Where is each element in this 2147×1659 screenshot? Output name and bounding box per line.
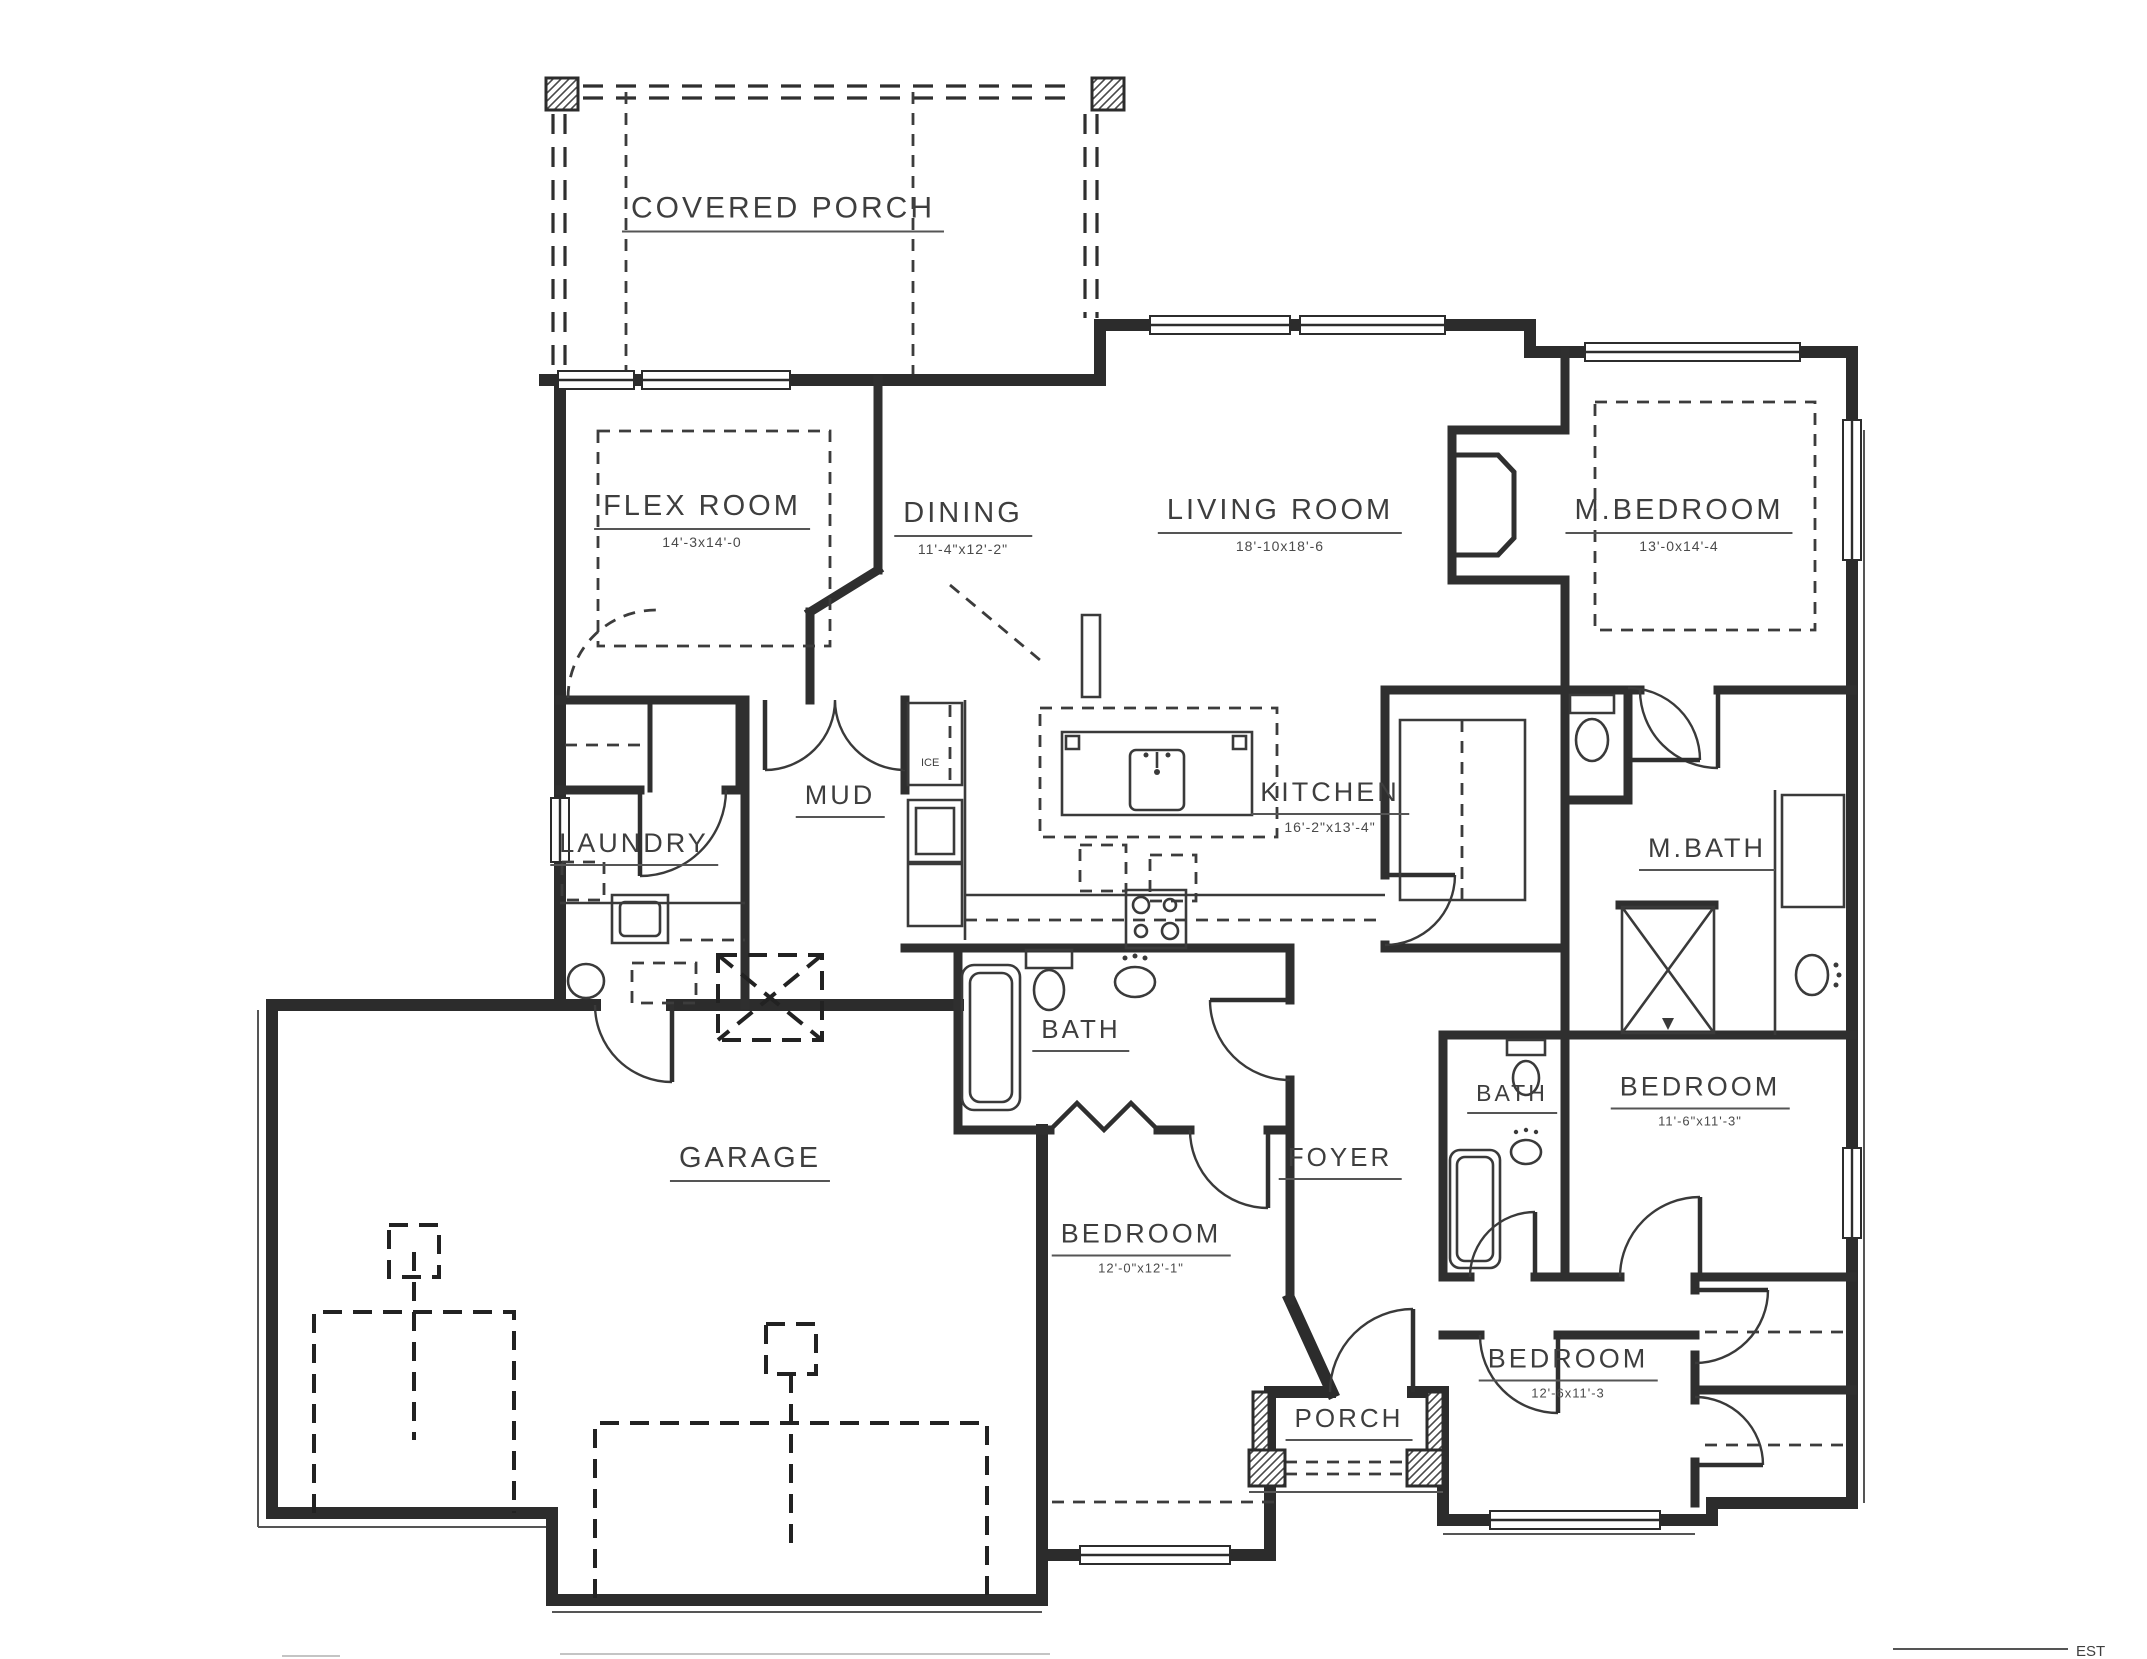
fridge-label: ICE bbox=[921, 757, 939, 769]
room-label-bedroom-right: BEDROOM 11'-6"x11'-3" bbox=[1611, 1072, 1790, 1129]
room-name: FLEX ROOM bbox=[594, 490, 810, 530]
room-label-bath-hall: BATH bbox=[1467, 1080, 1557, 1114]
bathtub-icon bbox=[962, 965, 1020, 1110]
room-name: BEDROOM bbox=[1479, 1344, 1658, 1382]
room-label-covered-porch: COVERED PORCH bbox=[622, 192, 944, 233]
room-name: PORCH bbox=[1286, 1403, 1413, 1441]
window-icon bbox=[1843, 420, 1861, 560]
room-dims: 13'-0x14'-4 bbox=[1565, 538, 1792, 554]
kitchen-sink-icon bbox=[1130, 750, 1184, 810]
room-dims: 12'-0"x12'-1" bbox=[1052, 1261, 1231, 1276]
fridge-icon bbox=[908, 703, 962, 785]
window-icon bbox=[1080, 1546, 1230, 1564]
floor-plan-drawing: ICE EST bbox=[0, 0, 2147, 1659]
room-name: KITCHEN bbox=[1251, 777, 1409, 815]
sink-icon bbox=[1796, 955, 1842, 995]
room-name: FOYER bbox=[1279, 1142, 1402, 1180]
room-label-bedroom-bottom: BEDROOM 12'-6x11'-3 bbox=[1479, 1344, 1658, 1401]
wall-oven-icon bbox=[908, 800, 962, 926]
porch-post-icon bbox=[546, 78, 578, 110]
attic-access-icon bbox=[718, 955, 822, 1040]
room-dims: 12'-6x11'-3 bbox=[1479, 1386, 1658, 1401]
toilet-icon bbox=[1026, 950, 1072, 1010]
room-name: BEDROOM bbox=[1052, 1219, 1231, 1257]
room-name: DINING bbox=[894, 497, 1032, 537]
room-label-m-bath: M.BATH bbox=[1639, 833, 1775, 871]
room-dims: 11'-6"x11'-3" bbox=[1611, 1114, 1790, 1129]
room-name: MUD bbox=[796, 780, 885, 818]
window-icon bbox=[1490, 1511, 1660, 1529]
room-dims: 14'-3x14'-0 bbox=[594, 534, 810, 550]
room-name: M.BATH bbox=[1639, 833, 1775, 871]
room-label-bath: BATH bbox=[1032, 1014, 1129, 1052]
porch-post-icon bbox=[1249, 1450, 1285, 1486]
room-name: BATH bbox=[1032, 1014, 1129, 1052]
room-label-m-bedroom: M.BEDROOM 13'-0x14'-4 bbox=[1565, 494, 1792, 554]
room-name: GARAGE bbox=[670, 1142, 830, 1182]
kitchen-island-icon bbox=[1062, 732, 1252, 815]
shower-icon bbox=[1622, 907, 1714, 1033]
porch-post-icon bbox=[1407, 1450, 1443, 1486]
room-dims: 18'-10x18'-6 bbox=[1158, 538, 1402, 554]
room-name: BATH bbox=[1467, 1080, 1557, 1114]
room-label-laundry: LAUNDRY bbox=[550, 828, 718, 866]
corner-annotation: EST bbox=[1893, 1643, 2105, 1659]
room-label-bedroom-middle: BEDROOM 12'-0"x12'-1" bbox=[1052, 1219, 1231, 1276]
room-dims: 16'-2"x13'-4" bbox=[1251, 819, 1409, 835]
floor-plan: ICE EST COVERED PORCH FLEX ROOM 14'-3x14… bbox=[0, 0, 2147, 1659]
room-label-garage: GARAGE bbox=[670, 1142, 830, 1182]
toilet-icon bbox=[1570, 695, 1614, 761]
garage-doors bbox=[314, 955, 987, 1598]
sink-icon bbox=[1511, 1128, 1541, 1164]
window-icon bbox=[1300, 316, 1445, 334]
room-name: M.BEDROOM bbox=[1565, 494, 1792, 534]
hutch-icon bbox=[1082, 615, 1100, 697]
window-icon bbox=[1150, 316, 1290, 334]
window-icon bbox=[1843, 1148, 1861, 1238]
room-label-porch: PORCH bbox=[1286, 1403, 1413, 1441]
bifold-doors-icon bbox=[1050, 1103, 1158, 1130]
room-label-flex-room: FLEX ROOM 14'-3x14'-0 bbox=[594, 490, 810, 550]
room-dims: 11'-4"x12'-2" bbox=[894, 541, 1032, 557]
window-icon bbox=[1585, 343, 1800, 361]
corner-est-label: EST bbox=[2076, 1643, 2105, 1659]
linen-cabinet-icon bbox=[1782, 795, 1844, 907]
room-name: COVERED PORCH bbox=[622, 192, 944, 233]
room-label-kitchen: KITCHEN 16'-2"x13'-4" bbox=[1251, 777, 1409, 835]
window-icon bbox=[642, 371, 790, 389]
room-label-mud: MUD bbox=[796, 780, 885, 818]
porch-post-icon bbox=[1092, 78, 1124, 110]
sink-icon bbox=[1115, 954, 1155, 998]
room-label-living-room: LIVING ROOM 18'-10x18'-6 bbox=[1158, 494, 1402, 554]
room-name: LIVING ROOM bbox=[1158, 494, 1402, 534]
room-label-dining: DINING 11'-4"x12'-2" bbox=[894, 497, 1032, 557]
water-heater-icon bbox=[568, 964, 604, 998]
room-label-foyer: FOYER bbox=[1279, 1142, 1402, 1180]
room-name: LAUNDRY bbox=[550, 828, 718, 866]
room-name: BEDROOM bbox=[1611, 1072, 1790, 1110]
window-icon bbox=[558, 371, 634, 389]
